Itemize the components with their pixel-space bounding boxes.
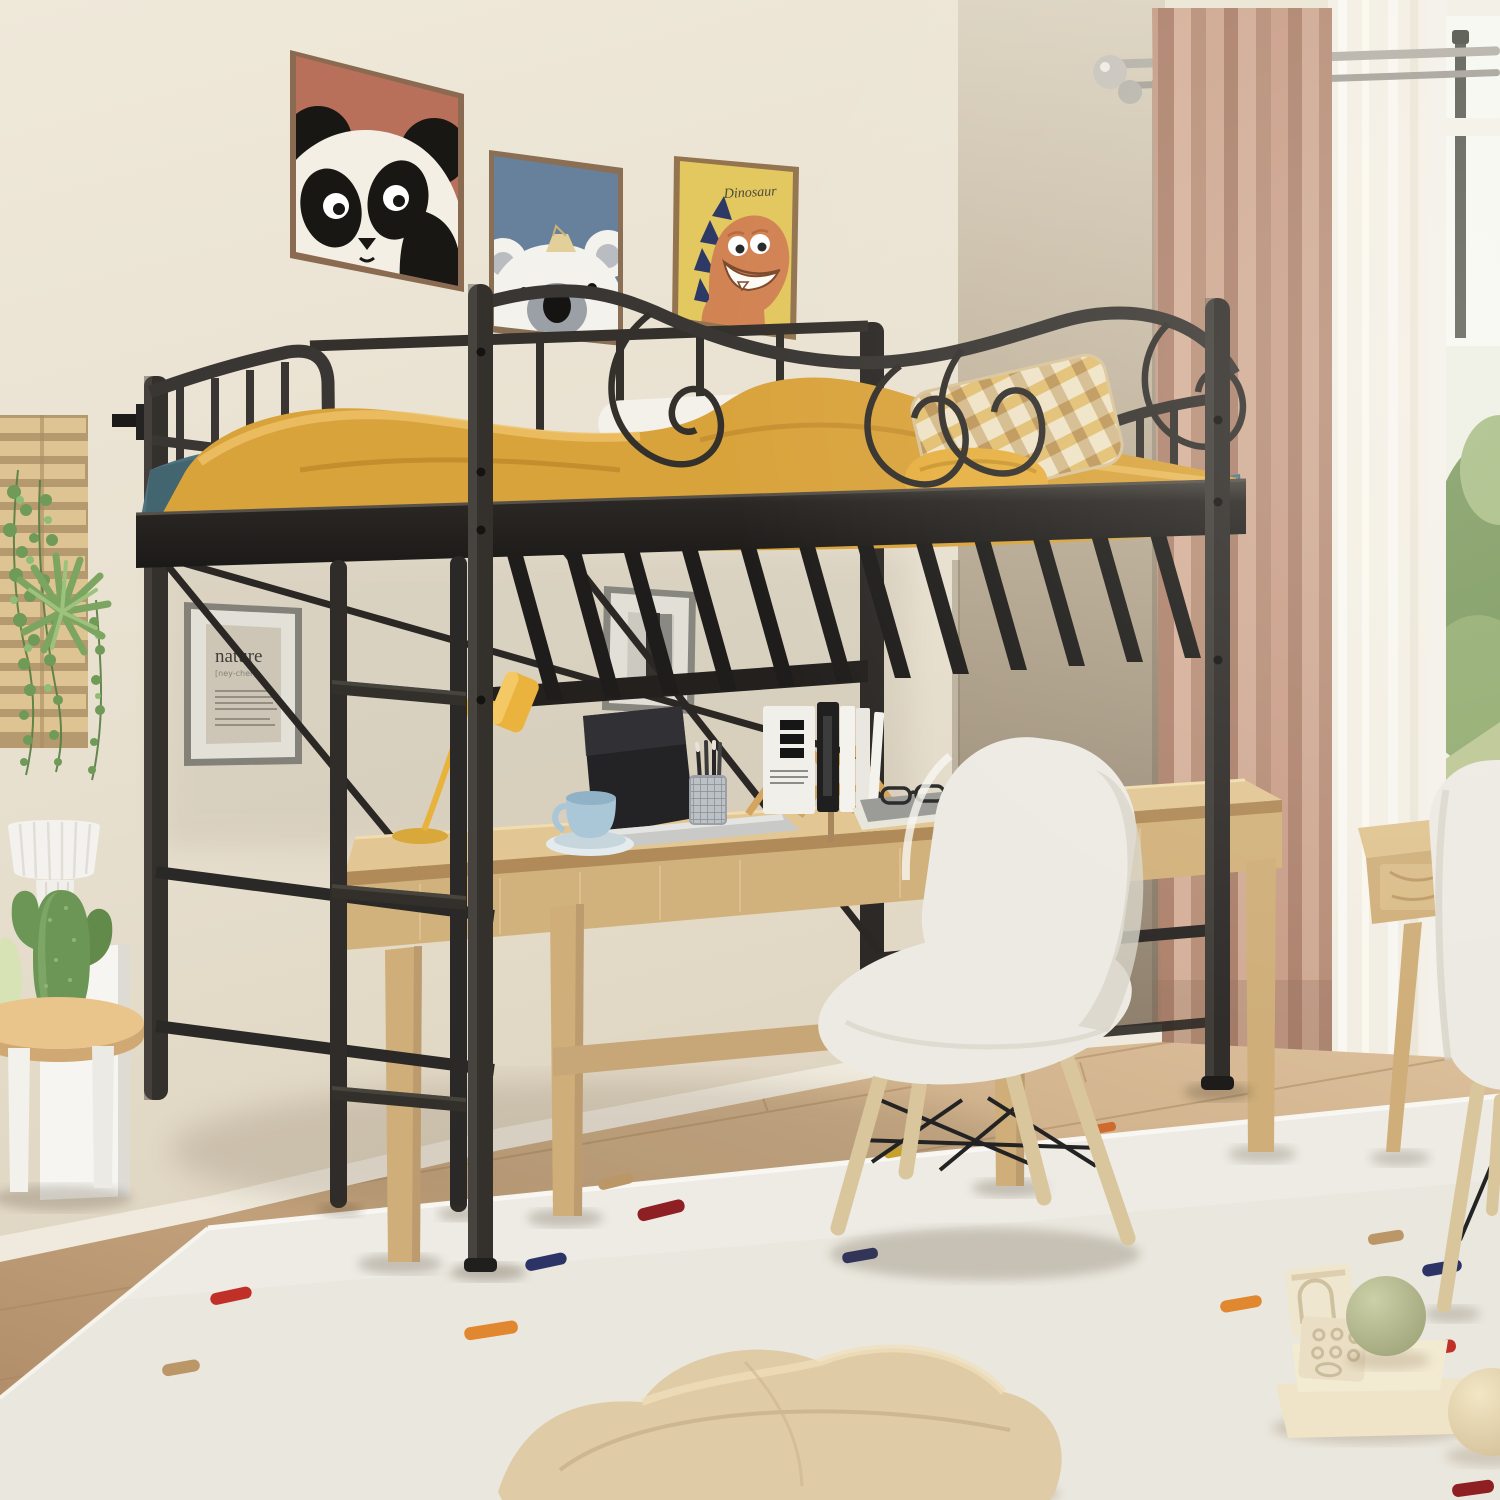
window-light-glow <box>0 0 1500 1500</box>
kids-room-loft-bed-photo: nature [ney-cher] <box>0 0 1500 1500</box>
